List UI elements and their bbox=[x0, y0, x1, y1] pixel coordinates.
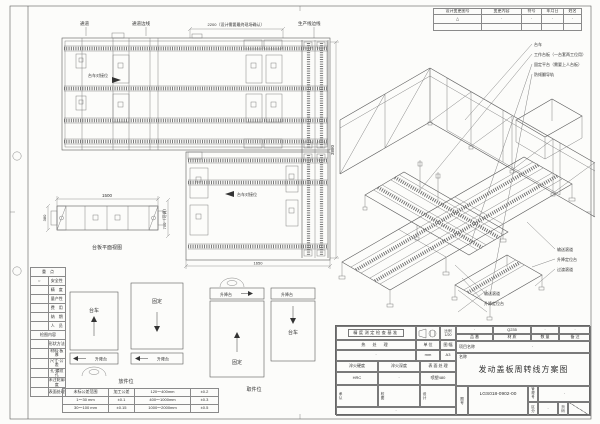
checklist-item: 精 度 bbox=[48, 286, 66, 295]
flow-diagrams: 台车 升降台 固定 升降台 放件位 升降台 固定 升降台 台车 取件 bbox=[70, 278, 315, 393]
hardness-label: 淬火硬度 bbox=[336, 361, 378, 372]
revision-cell: · bbox=[522, 15, 542, 24]
hardness-value: HRC bbox=[336, 372, 378, 385]
part-no-value: · bbox=[456, 326, 493, 334]
operator-head-icon bbox=[227, 281, 237, 286]
part-no-label: 品 番 bbox=[456, 334, 493, 341]
iso-callouts: 台车 工作台板（一台套两工位用） 固定平台（需要上人台板） 防倾翻导轨 输送滚道… bbox=[420, 41, 586, 306]
page-label-cell: 页码 bbox=[558, 402, 568, 416]
qty-label: 数 量 bbox=[531, 334, 559, 341]
tolerance-cell: ±0.2 bbox=[191, 389, 219, 397]
flow-lift-label: 升降台 bbox=[220, 291, 232, 297]
checklist-item: 形状方法 bbox=[48, 340, 66, 349]
tolerance-cell: ±0.3 bbox=[191, 397, 219, 405]
tolerance-cell: 30～100 mm bbox=[63, 405, 109, 413]
callout-lift-1: 升降定位台 bbox=[557, 256, 577, 262]
tolerance-cell: ±0.15 bbox=[109, 405, 135, 413]
flow-lift-label: 升降台 bbox=[157, 356, 169, 362]
surface-value: 喷塑480 bbox=[420, 372, 456, 385]
callout-lift-2: 升降定位台 bbox=[484, 300, 504, 306]
manage-label-cell: 管理号 bbox=[528, 386, 538, 402]
callout-fixed-platform: 固定平台（需要上人台板） bbox=[534, 61, 582, 67]
approve-label: 承认 bbox=[338, 392, 343, 400]
production-line-strip bbox=[302, 40, 328, 258]
accuracy-box: 精度测定检查基准 bbox=[348, 329, 404, 337]
checklist-header: 检图内容 bbox=[31, 331, 66, 340]
bottom-note-cell: · bbox=[336, 407, 456, 416]
revision-cell: · bbox=[564, 15, 582, 24]
title-block: 精度测定检查基准 比例 1/20 热 处 理 单 位 图 幅 · mm A3 淬… bbox=[335, 325, 590, 415]
surface-label: 表 面 处 理 bbox=[420, 361, 456, 372]
dim-750-text: 750（可调） bbox=[161, 207, 167, 230]
production-edge-label: 生产线边线 bbox=[298, 20, 321, 27]
pallet-side-view: 1500 380 750（可调） 台板平面视图 bbox=[42, 193, 170, 251]
heat-label: 热 处 理 bbox=[336, 340, 416, 350]
projection-symbol-cell bbox=[416, 326, 440, 340]
tolerance-cell: 未标公差范围 bbox=[63, 389, 109, 397]
design-cell: 设计 bbox=[420, 385, 456, 407]
revision-cell: · bbox=[482, 15, 522, 24]
tolerance-table: 未标公差范围 加工公差 120～400mm ±0.2 1～30 mm ±0.1 … bbox=[62, 388, 219, 413]
dock-label-1: 台车对接位 bbox=[88, 72, 108, 78]
check-cell: 校图 bbox=[378, 385, 420, 407]
tolerance-cell: 400～1000mm bbox=[135, 397, 191, 405]
arrow-up-icon bbox=[234, 332, 240, 338]
division-label-cell: 区分 bbox=[528, 402, 538, 416]
size-label: 图 幅 bbox=[440, 340, 456, 350]
checklist-item: 材料·板厚 bbox=[48, 349, 66, 359]
revision-cell: · bbox=[542, 15, 564, 24]
note-value: · bbox=[559, 326, 591, 334]
dim-1650: 1650 bbox=[184, 260, 332, 269]
flow-fixed-label: 固定 bbox=[152, 298, 162, 305]
iso-view bbox=[339, 68, 595, 320]
page-label: 页码 bbox=[561, 405, 566, 413]
accuracy-cell: 精度测定检查基准 bbox=[336, 326, 416, 340]
tolerance-cell: ±0.5 bbox=[191, 405, 219, 413]
qty-value: · bbox=[531, 326, 559, 334]
side-view-caption: 台板平面视图 bbox=[92, 244, 122, 251]
callout-worktable: 工作台板（一台套两工位用） bbox=[534, 51, 586, 57]
design-label: 设计 bbox=[422, 392, 427, 400]
dim-1500-text: 1500 bbox=[102, 193, 113, 198]
dock-label-2: 台车对接位 bbox=[237, 191, 257, 197]
callout-cart: 台车 bbox=[534, 41, 542, 47]
projection-symbol-icon bbox=[418, 328, 438, 339]
page-diagonal-cell bbox=[568, 402, 591, 416]
checklist-header: 重 点 bbox=[31, 268, 66, 277]
dim-3880: 3880 bbox=[330, 40, 339, 260]
arrow-left-icon bbox=[135, 356, 140, 361]
revision-cell: △ bbox=[434, 15, 482, 24]
unit-value: mm bbox=[416, 350, 440, 361]
project-label: 项目名称 bbox=[459, 345, 475, 350]
drawing-title: 发动盖板周转线方案图 bbox=[457, 365, 590, 374]
checklist-item: 纳 期 bbox=[48, 313, 66, 322]
pick-station-label: 取件位 bbox=[246, 386, 261, 393]
checklist-item: 人 员 bbox=[48, 322, 66, 331]
dim-2200-text: 2200（设计需要最终现场确认） bbox=[208, 21, 265, 27]
arrow-right-icon bbox=[248, 291, 253, 296]
division-value: · bbox=[538, 402, 558, 416]
note-label: 备 注 bbox=[559, 334, 591, 341]
flow-lift-label: 升降台 bbox=[281, 291, 293, 297]
checklist-table: 重 点 ○ 安全性 精 度 量产性 费 用 纳 期 人 员 检图内容 形状方法 … bbox=[30, 267, 66, 397]
checklist-mark: ○ bbox=[31, 277, 49, 286]
dim-380-text: 380 bbox=[42, 214, 47, 221]
dock-arrow-icon bbox=[112, 77, 121, 83]
checklist-item: 安全性 bbox=[48, 277, 66, 286]
callout-conveyor-2: 输送滚道 bbox=[484, 290, 500, 296]
flow-fixed-label: 固定 bbox=[232, 359, 242, 366]
size-value: A3 bbox=[440, 350, 456, 361]
callout-rail: 防倾翻导轨 bbox=[534, 71, 554, 77]
checklist-item: 费 用 bbox=[48, 304, 66, 313]
drop-station-label: 放件位 bbox=[118, 378, 133, 385]
tolerance-cell: 1～30 mm bbox=[63, 397, 109, 405]
material-label: 材 质 bbox=[493, 334, 531, 341]
arrow-down-icon bbox=[290, 318, 296, 324]
tolerance-cell: 加工公差 bbox=[109, 389, 135, 397]
callout-conveyor-1: 输送滚道 bbox=[557, 246, 573, 252]
manage-label: 管理号 bbox=[531, 388, 536, 399]
manage-value: · bbox=[538, 386, 591, 402]
unit-label: 单 位 bbox=[416, 340, 440, 350]
callout-transition: 过渡滚道 bbox=[557, 266, 573, 272]
dwgno-label-cell: 图号 bbox=[456, 386, 468, 416]
arrow-left-icon bbox=[73, 356, 78, 361]
drawing-sheet: 通道 通道边线 生产线边线 2200（设计需要最终现场确认） bbox=[0, 0, 600, 424]
project-cell: 项目名称 · bbox=[456, 341, 591, 353]
dim-2200: 2200（设计需要最终现场确认） bbox=[188, 21, 285, 38]
punch-hole-icon bbox=[13, 152, 21, 160]
dim-3880-text: 3880 bbox=[330, 144, 335, 155]
checklist-item: 未注轮廓度 bbox=[48, 378, 66, 388]
tolerance-cell: 120～400mm bbox=[135, 389, 191, 397]
scale-value: 1/20 bbox=[445, 333, 452, 337]
check-label: 校图 bbox=[380, 392, 385, 400]
checklist-item: 尺寸·公差 bbox=[48, 358, 66, 368]
plan-view-top: 台车对接位 bbox=[62, 33, 330, 150]
scale-cell: 比例 1/20 bbox=[440, 326, 456, 340]
revision-table: 设计变更图号 变更内容 符号 年月日 姓名 △ · · · · bbox=[433, 8, 582, 31]
name-cell: 名称 发动盖板周转线方案图 bbox=[456, 353, 591, 386]
flow-lift-label: 升降台 bbox=[95, 356, 107, 362]
approve-cell: 承认 bbox=[336, 385, 378, 407]
checklist-item: 孔·螺纹孔 bbox=[48, 368, 66, 378]
flow-cart-label: 台车 bbox=[89, 307, 99, 314]
operator-head-icon bbox=[89, 370, 99, 375]
flow-cart-label: 台车 bbox=[288, 329, 298, 336]
name-label: 名称 bbox=[459, 355, 590, 360]
heat-value: · bbox=[336, 350, 416, 361]
checklist-item: 量产性 bbox=[48, 295, 66, 304]
iso-lift-unit bbox=[452, 255, 544, 320]
arrow-up-icon bbox=[91, 316, 97, 322]
corridor-edge-label: 通道边线 bbox=[132, 20, 150, 27]
punch-hole-icon bbox=[13, 267, 21, 275]
dock-arrow-icon bbox=[225, 191, 234, 197]
tolerance-cell: ±0.1 bbox=[109, 397, 135, 405]
dwgno-label: 图号 bbox=[460, 397, 465, 405]
dim-1650-text: 1650 bbox=[254, 261, 264, 266]
corridor-label: 通道 bbox=[80, 20, 89, 27]
division-label: 区分 bbox=[531, 405, 536, 413]
tolerance-cell: 1000～2000mm bbox=[135, 405, 191, 413]
dwgno-value: LGS018-0902-00 bbox=[468, 386, 528, 416]
depth-value: · bbox=[378, 372, 420, 385]
depth-label: 淬火深度 bbox=[378, 361, 420, 372]
arrow-down-icon bbox=[154, 326, 160, 332]
material-value: Q235 bbox=[493, 326, 531, 334]
project-value: · bbox=[532, 345, 533, 350]
